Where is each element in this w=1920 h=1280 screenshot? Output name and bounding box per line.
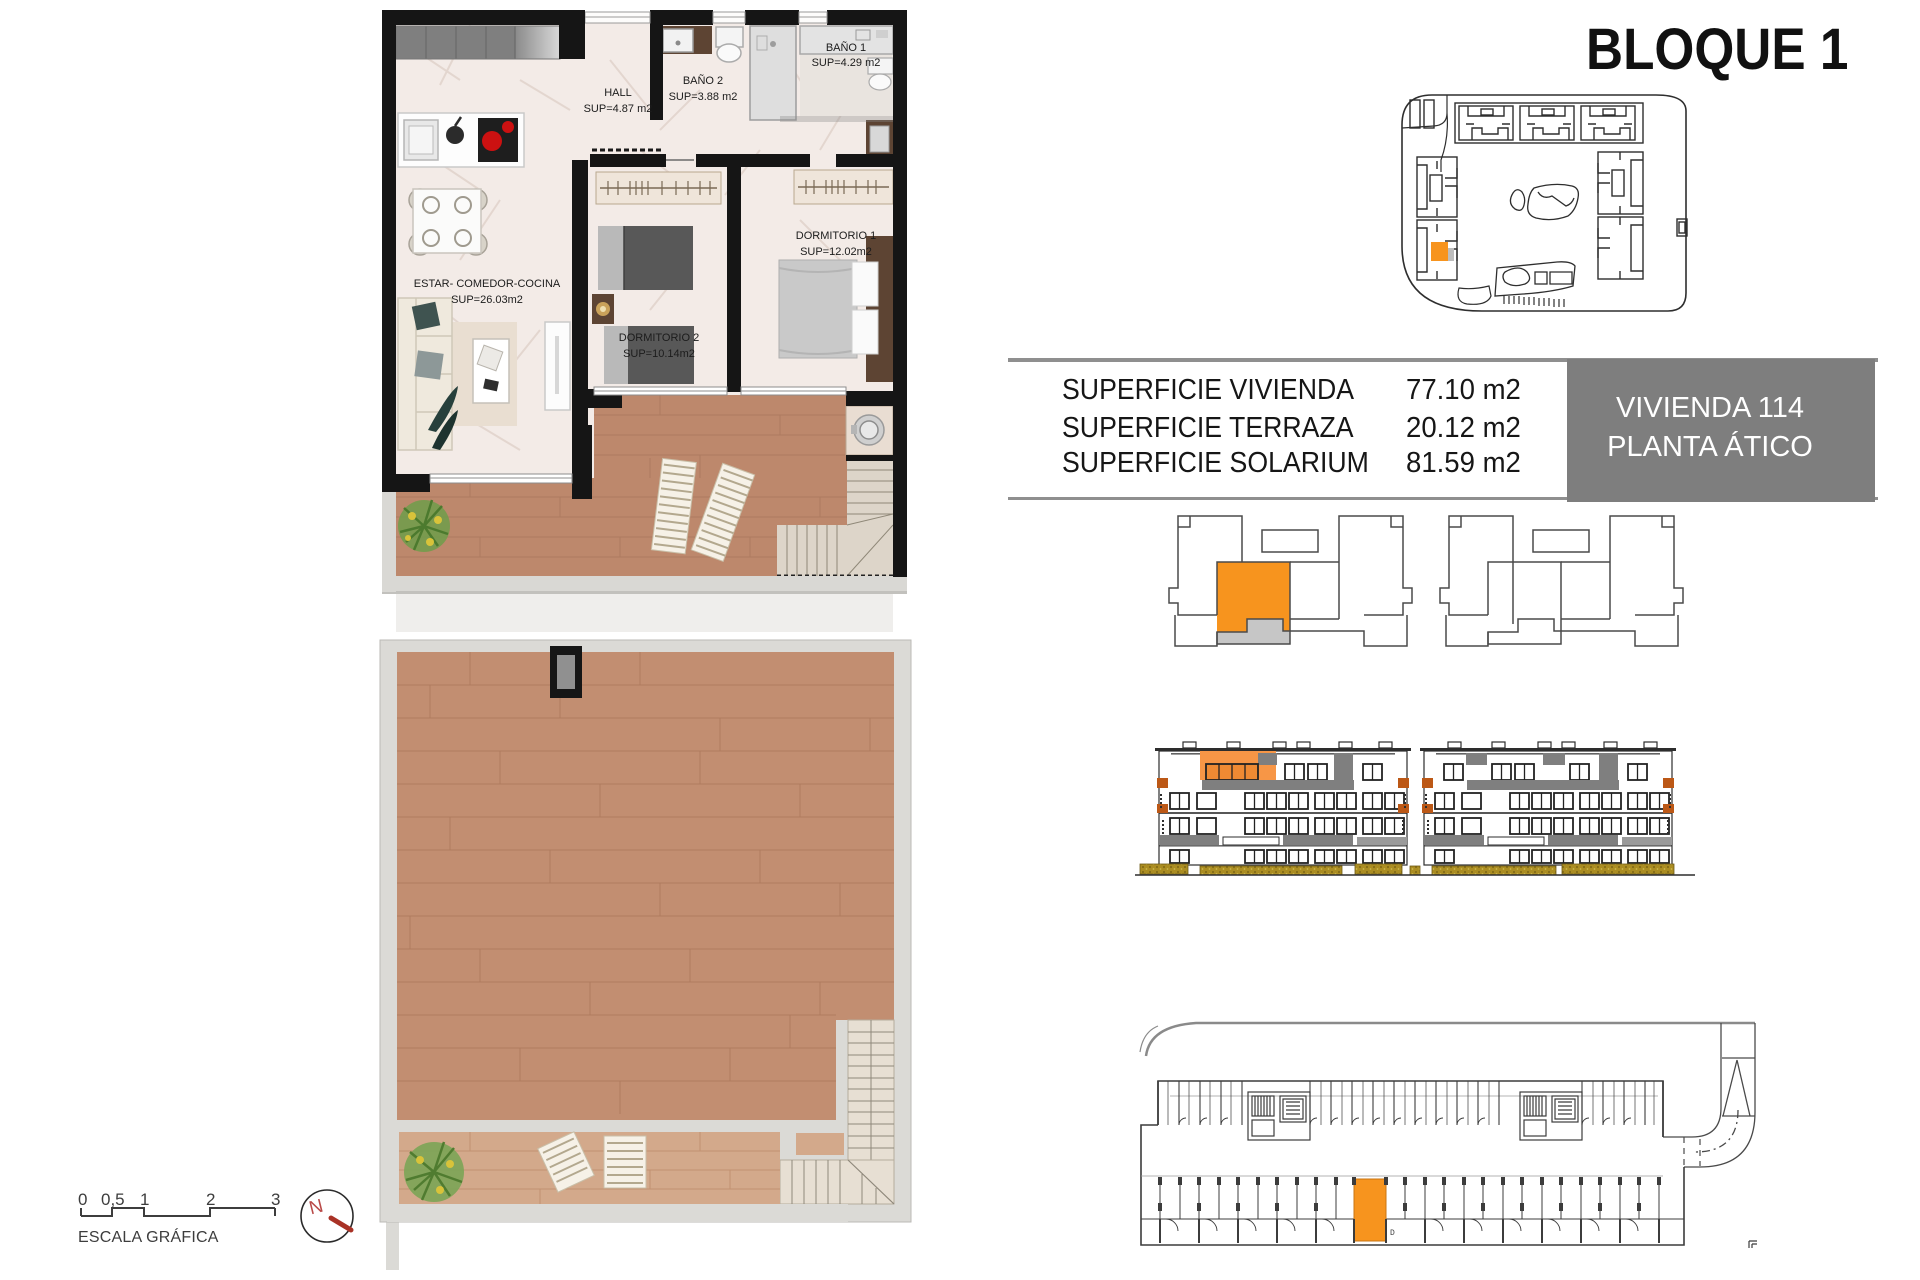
svg-text:3: 3	[271, 1190, 280, 1209]
svg-text:DORMITORIO 1: DORMITORIO 1	[796, 230, 876, 242]
svg-text:DORMITORIO 2: DORMITORIO 2	[619, 332, 699, 344]
svg-text:SUP=12.02m2: SUP=12.02m2	[800, 246, 872, 258]
svg-text:SUP=26.03m2: SUP=26.03m2	[451, 294, 523, 306]
svg-text:BAÑO 2: BAÑO 2	[683, 74, 723, 87]
svg-text:BAÑO 1: BAÑO 1	[826, 41, 866, 54]
svg-text:SUP=10.14m2: SUP=10.14m2	[623, 348, 695, 360]
svg-text:1: 1	[140, 1190, 149, 1209]
svg-text:ESTAR- COMEDOR-COCINA: ESTAR- COMEDOR-COCINA	[414, 278, 561, 290]
svg-text:2: 2	[206, 1190, 215, 1209]
svg-text:D: D	[1390, 1229, 1395, 1238]
svg-text:ESCALA GRÁFICA: ESCALA GRÁFICA	[78, 1227, 219, 1246]
svg-text:SUP=4.87 m2: SUP=4.87 m2	[584, 103, 653, 115]
svg-text:0: 0	[78, 1190, 87, 1209]
svg-text:SUP=3.88 m2: SUP=3.88 m2	[669, 91, 738, 103]
svg-text:0,5: 0,5	[101, 1190, 125, 1209]
svg-text:SUP=4.29 m2: SUP=4.29 m2	[812, 57, 881, 69]
svg-text:HALL: HALL	[604, 87, 632, 99]
